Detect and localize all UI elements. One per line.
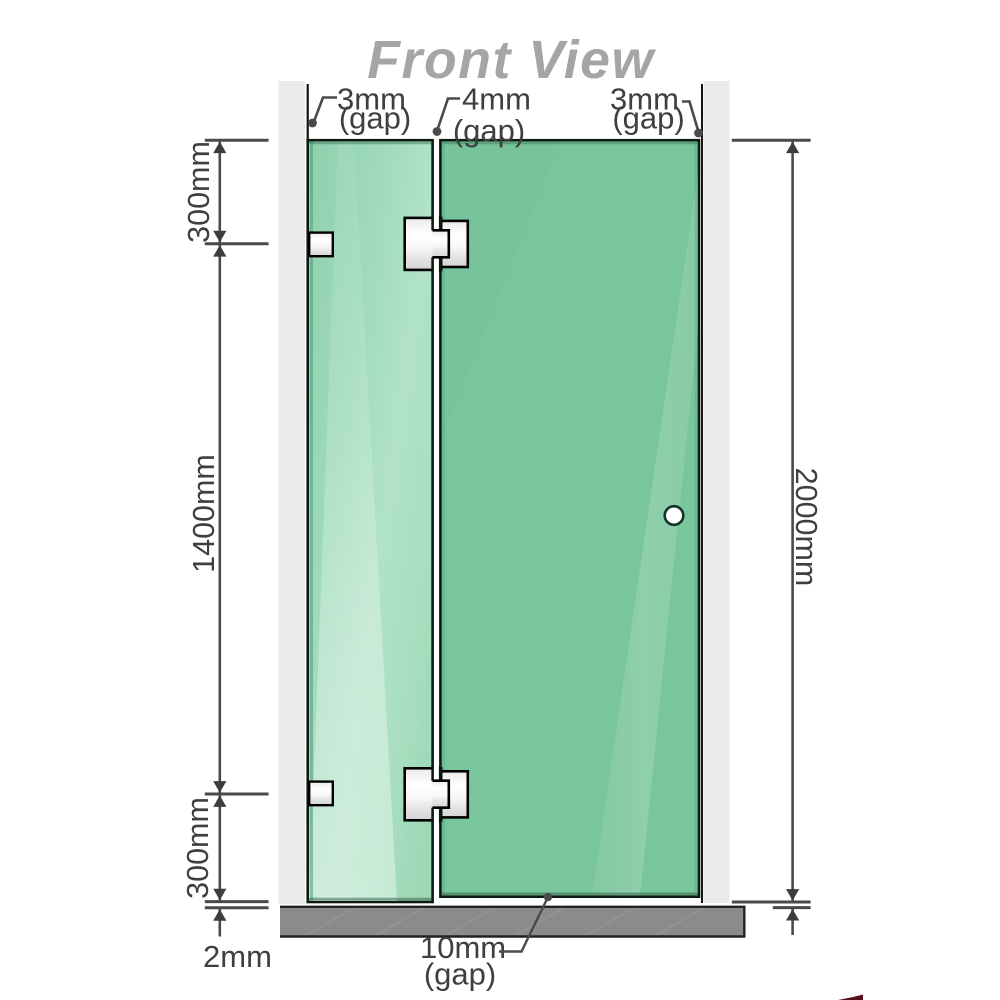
svg-text:300mm: 300mm xyxy=(181,797,215,899)
svg-text:300mm: 300mm xyxy=(182,141,216,243)
svg-text:(gap): (gap) xyxy=(339,101,411,136)
svg-text:(gap): (gap) xyxy=(424,957,496,992)
svg-text:2mm: 2mm xyxy=(203,939,272,974)
svg-text:(gap): (gap) xyxy=(612,101,684,136)
svg-text:2000mm: 2000mm xyxy=(789,468,823,587)
svg-text:4mm: 4mm xyxy=(462,82,531,117)
svg-text:1400mm: 1400mm xyxy=(187,454,221,573)
svg-text:(gap): (gap) xyxy=(453,113,525,148)
